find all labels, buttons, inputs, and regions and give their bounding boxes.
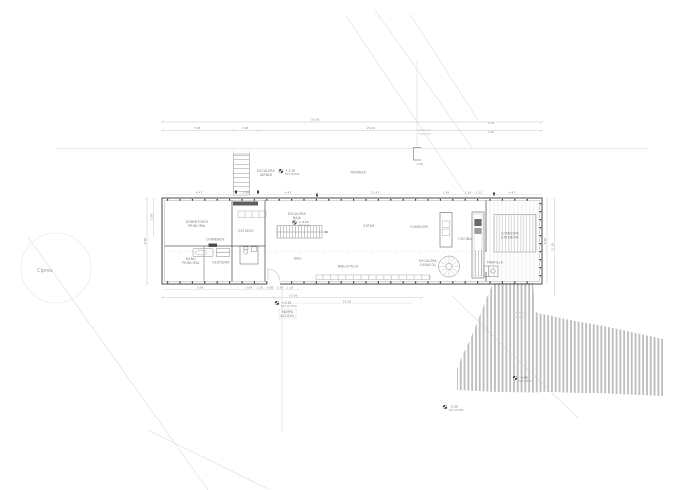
dim-b6: 1.38 <box>287 285 294 289</box>
plan-svg: Cipres DECK DE MADERA <box>0 0 693 490</box>
label-biblioteca: BIBLIOTECA <box>338 265 359 269</box>
dim-t7: 1.15 <box>476 191 483 195</box>
closet-row <box>238 211 266 218</box>
level-acceso: + 0.15 NPT ACCESO <box>275 301 297 309</box>
grid-markers <box>235 191 495 197</box>
wood-deck <box>457 283 663 396</box>
tall-cabinet <box>472 212 484 278</box>
dim-l2: 2.98 <box>149 214 153 221</box>
spiral-stair-icon <box>439 256 460 277</box>
label-comedor-ext-2: EXTERIOR <box>501 236 519 240</box>
dim-total: 36.58 <box>311 118 320 122</box>
level-jardin-alto-ref: NPT JARDIN <box>285 172 300 176</box>
dim-b4: 0.88 <box>267 285 274 289</box>
dim-t2: 0.98 <box>243 191 250 195</box>
garden-stair <box>234 154 250 195</box>
floor-plan-drawing: Cipres DECK DE MADERA <box>0 0 693 490</box>
dim-r1: 8.98 <box>543 238 547 245</box>
entry-landing <box>233 202 258 206</box>
tree-label: Cipres <box>37 268 53 274</box>
drain-bracket <box>414 148 422 161</box>
site-lines <box>28 10 648 490</box>
level-jardin-alto: + 2.30 NPT JARDIN <box>279 169 300 177</box>
level-jardin-alto-value: + 2.30 <box>285 169 295 173</box>
label-bano-2: PRINCIPAL <box>182 261 200 265</box>
dim-b-total: 10.98 <box>289 293 298 297</box>
label-caracol-2: CARACOL <box>420 263 436 267</box>
dim-seg-b: 1.98 <box>242 126 249 130</box>
sink-icon <box>252 247 257 252</box>
dim-r2: 11.38 <box>551 243 555 252</box>
dim-b5: 1.98 <box>277 285 284 289</box>
level-deck-ref: NPT DECK <box>519 379 532 383</box>
label-hall: HALL <box>294 257 303 261</box>
label-terraza: TERRAZA <box>349 171 367 175</box>
label-estar: ESTAR <box>364 224 376 228</box>
tree-canopy-circle <box>21 233 91 303</box>
level-acceso-value: + 0.15 <box>281 301 291 305</box>
toilet-icon <box>244 247 249 254</box>
dim-t4: 10.47 <box>371 191 380 195</box>
level-jardin-bajo: - 2.30 NPT JARDIN <box>443 405 464 413</box>
dim-b3: 2.30 <box>257 285 264 289</box>
entry-door <box>268 269 280 281</box>
level-interior-ref: NPT PISO <box>299 224 311 228</box>
ramp-note: RAMPA ACCESO <box>279 309 296 318</box>
label-estudio: ESTUDIO <box>238 229 254 233</box>
dim-l1: 8.98 <box>143 238 147 245</box>
dim-t5: 1.98 <box>443 191 450 195</box>
level-jardin-bajo-value: - 2.30 <box>449 405 458 409</box>
dim-br1: 0.30 <box>417 162 424 166</box>
dim-b1: 3.98 <box>197 285 204 289</box>
site-note-2: TERRENO <box>417 132 432 136</box>
label-rampa-2: ACCESO <box>280 314 294 318</box>
level-jardin-bajo-ref: NPT JARDIN <box>449 408 464 412</box>
dim-seg-c: 26.62 <box>367 126 376 130</box>
bookshelf <box>316 275 430 280</box>
label-comedor: COMEDOR <box>410 225 428 229</box>
level-interior-value: + 0.15 <box>299 220 309 224</box>
deck-label-2: MADERA <box>513 315 525 319</box>
wardrobe-icon <box>217 249 230 257</box>
dim-t8: 4.47 <box>509 191 516 195</box>
level-acceso-ref: NPT ACCESO <box>281 304 297 308</box>
dim-seg-a: 7.98 <box>194 126 201 130</box>
dim-t1: 4.47 <box>196 191 203 195</box>
label-vestidor: VESTIDOR <box>212 261 230 265</box>
dim-b2: 0.98 <box>246 285 253 289</box>
label-chimenea: CHIMENEA <box>206 238 225 242</box>
dim-b-long: 16.98 <box>343 299 352 303</box>
label-parrilla: PARRILLA <box>487 261 504 265</box>
fireplace-icon <box>209 244 218 247</box>
bathtub-icon <box>193 249 213 257</box>
dim-t6: 1.38 <box>465 191 472 195</box>
dim-tr1: 0.15 <box>488 121 495 125</box>
dim-tr2: 0.30 <box>488 130 495 134</box>
label-cocina: COCINA <box>458 237 472 241</box>
label-dormitorio-2: PRINCIPAL <box>188 224 206 228</box>
label-esc-jardin-2: JARDIN <box>259 173 272 177</box>
level-deck-value: - 0.90 <box>519 376 528 380</box>
kitchen-island <box>440 213 452 248</box>
dim-t3: 4.47 <box>285 191 292 195</box>
